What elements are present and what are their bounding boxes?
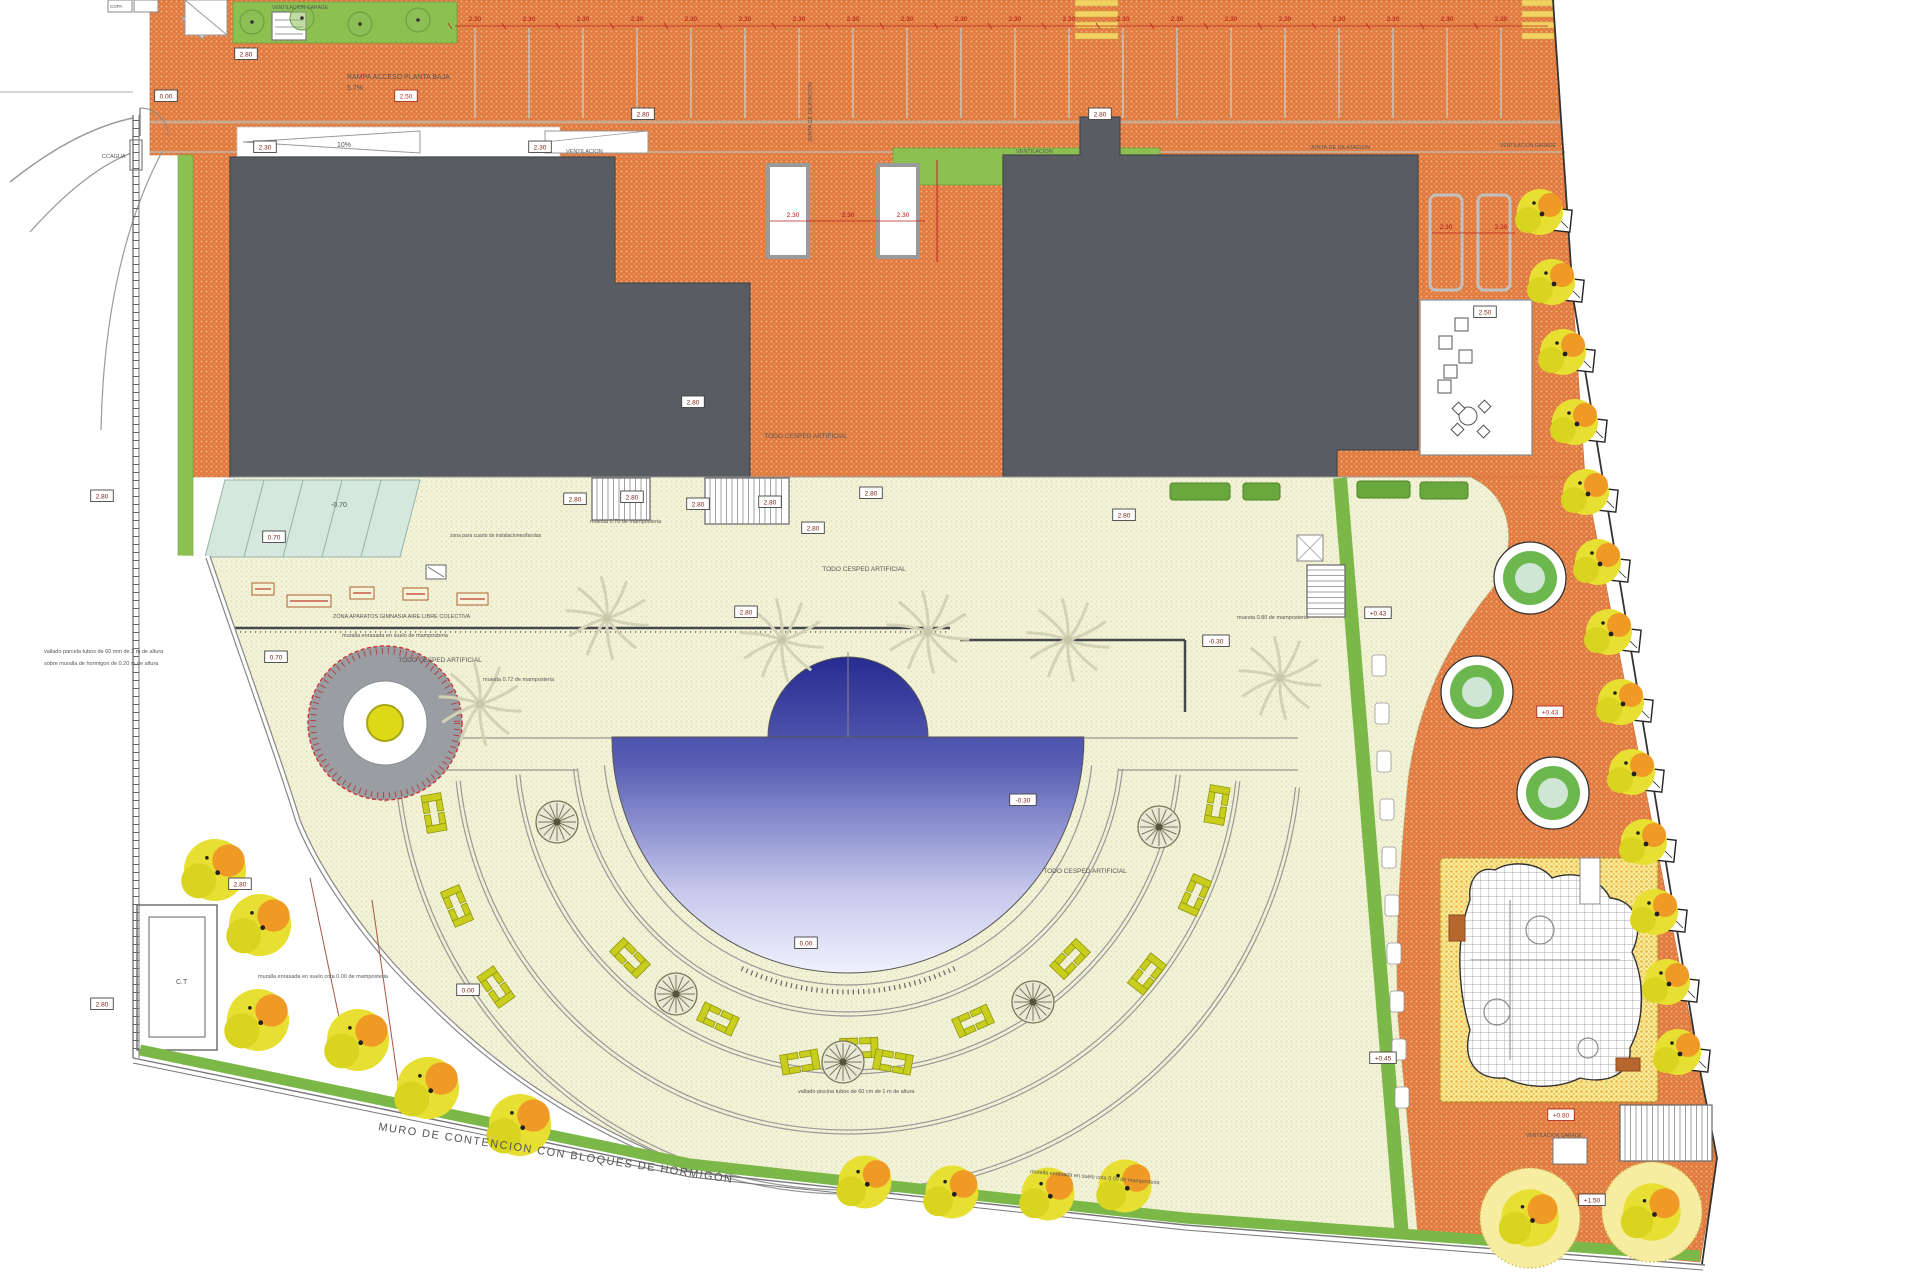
plan-annotation: muralla enrasada en suelo de mamposteria [342,633,449,639]
plan-annotation: vallado piscina tubos de 60 cm de 1 m de… [798,1089,915,1095]
grass-strip-left [178,155,193,557]
elevation-value: +0.43 [1542,710,1559,717]
dim-label: 2.30 [1279,16,1292,23]
plan-annotation: muesta 0.70 de mamposteria [590,519,662,525]
stepping-stone [1390,991,1404,1012]
elevation-marker: 2.80 [564,493,587,505]
elevation-value: 2.80 [96,494,109,501]
plan-annotation: muesta 0.72 de mamposteria [483,677,555,683]
stepping-stone [1395,1087,1409,1108]
dim-label: 2.30 [1225,16,1238,23]
elevation-marker: 2.80 [632,108,655,120]
garage-vent-box-bottom [1553,1138,1587,1164]
elevation-marker: +0.45 [1370,1052,1397,1064]
gym-equipment-box [252,583,274,595]
dim-label: 2.30 [897,212,910,219]
dim-label: 2.30 [793,16,806,23]
crossing-stripe [1522,33,1554,39]
elevation-value: 2.80 [865,491,878,498]
courtyard-vent [768,165,808,257]
stair-flight [1307,565,1345,617]
plan-annotation: muralla enrasada en suelo cota 0.00 de m… [258,974,389,980]
dim-label: 2.30 [842,212,855,219]
dim-label: 2.30 [1333,16,1346,23]
plan-annotation: VENTILACION [1016,149,1053,155]
elevation-value: 2.80 [569,497,582,504]
plan-annotation: COPA [110,4,122,9]
stepping-stone [1382,847,1396,868]
elevation-value: 2.80 [687,400,700,407]
crossing-stripe [1075,33,1118,39]
plan-annotation: JUNTA DE DILATACION [808,82,814,142]
elevation-value: +1.50 [1584,1198,1601,1205]
elevation-marker: 2.80 [735,606,758,618]
elevation-marker: 2.80 [802,522,825,534]
stepping-stone [1372,655,1386,676]
plan-annotation: sobre muralla de hormigon de 0.20 m de a… [44,661,159,667]
elevation-value: 2.80 [740,610,753,617]
hedge-block [1420,482,1468,499]
gym-equipment-box [287,595,331,607]
elevation-value: 2.30 [259,145,272,152]
round-planter [1517,757,1589,829]
transformer-ct-unit [149,917,205,1037]
dim-label: 2.30 [901,16,914,23]
palm-circle-icon [655,973,697,1015]
elevation-value: +0.43 [1370,611,1387,618]
elevation-value: 2.50 [1479,310,1492,317]
crossing-stripe [1075,11,1118,17]
elevation-marker: +0.80 [1548,1109,1575,1121]
elevation-marker: 2.80 [621,491,644,503]
gym-equipment-box [403,588,428,600]
tree-icon [1480,1168,1580,1268]
elevation-marker: 2.30 [254,141,277,153]
elevation-marker: 2.80 [229,878,252,890]
elevation-marker: 2.80 [1113,509,1136,521]
plan-annotation: VENTILACION [566,149,603,155]
patio-area [1420,300,1532,455]
stepping-stone [1377,751,1391,772]
stepping-stone [1375,703,1389,724]
elevation-marker: -0.30 [1203,635,1230,647]
elevation-value: 2.80 [1094,112,1107,119]
elevation-value: 0.00 [462,988,475,995]
round-planter [1441,656,1513,728]
plan-annotation: RAMPA ACCESO PLANTA BAJA [347,74,450,81]
elevation-marker: +1.50 [1579,1194,1606,1206]
palm-circle-icon [1012,981,1054,1023]
elevation-value: 0.00 [800,941,813,948]
stair-flight [1620,1105,1712,1161]
plan-annotation: 5.7% [347,85,363,92]
stepping-stone [1380,799,1394,820]
plan-annotation: VENTILACION GARAGE [272,5,329,11]
plan-annotation: VENTILACION GARAGE [1500,143,1557,149]
elevation-marker: 2.30 [529,141,552,153]
site-plan-drawing: 2.302.302.302.302.302.302.302.302.302.30… [0,0,1920,1280]
small-tree-icon [348,12,372,36]
plan-annotation: -0.70 [331,502,347,509]
plan-annotation: TODO CESPED ARTIFICIAL [398,657,482,664]
elevation-value: +0.45 [1375,1056,1392,1063]
dim-label: 2.30 [1171,16,1184,23]
elevation-marker: -0.30 [1010,794,1037,806]
crossing-stripe [1522,22,1554,28]
elevation-marker: 2.80 [759,496,782,508]
patio-chair [1438,380,1451,393]
elevation-marker: 2.80 [1089,108,1112,120]
elevation-marker: 0.00 [457,984,480,996]
ramp-teal [205,480,420,557]
elevation-value: -0.30 [1016,798,1031,805]
playground [1440,858,1658,1102]
building-b-roof [1003,117,1418,477]
plan-annotation: C.T [176,979,188,986]
elevation-marker: 2.50 [395,90,418,102]
plan-annotation: 10% [337,142,351,149]
dim-label: 2.30 [469,16,482,23]
dim-label: 2.30 [1387,16,1400,23]
play-entrance [1580,858,1600,904]
crossing-stripe [1522,11,1554,17]
elevation-value: 2.80 [692,502,705,509]
elevation-value: 2.80 [96,1002,109,1009]
plan-annotation: JUNTA DE DILATACION [1310,145,1370,151]
dim-label: 2.30 [631,16,644,23]
palm-circle-icon [822,1041,864,1083]
plan-annotation: TODO CESPED ARTIFICIAL [764,433,848,440]
dim-label: 2.30 [1009,16,1022,23]
hedge-block [1243,483,1280,500]
elevation-marker: 0.70 [263,531,286,543]
elevation-value: 0.70 [268,535,281,542]
patio-chair [1444,365,1457,378]
plan-annotation: zona para cuarto de instalaciones/farola… [450,533,542,539]
patio-chair [1439,336,1452,349]
plan-annotation: TODO CESPED ARTIFICIAL [1043,868,1127,875]
elevation-value: 0.00 [160,94,173,101]
elevation-marker: 2.50 [1474,306,1497,318]
small-tree-icon [240,10,264,34]
site-plan-page: 2.302.302.302.302.302.302.302.302.302.30… [0,0,1920,1280]
elevation-marker: +0.43 [1537,706,1564,718]
dim-label: 2.30 [739,16,752,23]
dim-label: 2.30 [847,16,860,23]
elevation-marker: 2.80 [91,490,114,502]
patio-chair [1455,318,1468,331]
plan-annotation: ZONA APARATOS GIMNASIA AIRE LIBRE COLECT… [333,614,470,620]
small-tree-icon [406,8,430,32]
hedge-block [1170,483,1230,500]
elevation-marker: 0.00 [795,937,818,949]
dim-label: 2.30 [685,16,698,23]
plan-annotation: TODO CESPED ARTIFICIAL [822,566,906,573]
elevation-value: 2.80 [807,526,820,533]
dim-label: 2.30 [1440,224,1453,231]
elevation-marker: 2.80 [235,48,258,60]
plan-annotation: VENTILACION GARAGE [1526,1133,1583,1139]
dim-label: 2.30 [1063,16,1076,23]
elevation-value: 2.30 [534,145,547,152]
plan-annotation: muesta 0.80 de mamposteria [1237,615,1309,621]
elevation-marker: 2.80 [687,498,710,510]
elevation-value: 2.80 [764,500,777,507]
stepping-stone [1387,943,1401,964]
elevation-value: 0.70 [270,655,283,662]
elevation-value: 2.80 [626,495,639,502]
elevation-marker: 0.70 [265,651,288,663]
street-cabinet [134,0,158,12]
elevation-value: -0.30 [1209,639,1224,646]
elevation-marker: 0.00 [155,90,178,102]
dim-label: 2.30 [955,16,968,23]
elevation-marker: 2.80 [682,396,705,408]
elevation-value: 2.50 [400,94,413,101]
courtyard-vent [878,165,918,257]
dim-label: 2.30 [1117,16,1130,23]
dim-label: 2.30 [787,212,800,219]
gym-equipment-box [350,587,374,599]
dim-label: 2.30 [1495,224,1508,231]
elevation-marker: +0.43 [1365,607,1392,619]
dim-label: 2.30 [1441,16,1454,23]
plan-annotation: vallado parcela tubos de 60 mm de 2 m de… [44,649,164,655]
elevation-value: +0.80 [1553,1113,1570,1120]
elevation-value: 2.80 [240,52,253,59]
elevation-marker: 2.80 [91,998,114,1010]
crossing-stripe [1522,0,1554,6]
elevation-value: 2.80 [637,112,650,119]
round-planter [1494,542,1566,614]
tree-icon [1602,1162,1702,1262]
stepping-stone [1385,895,1399,916]
play-bench [1616,1058,1640,1071]
elevation-value: 2.80 [1118,513,1131,520]
palm-circle-icon [1138,806,1180,848]
elevation-value: 2.80 [234,882,247,889]
palm-circle-icon [536,801,578,843]
dim-label: 2.30 [523,16,536,23]
elevation-marker: 2.80 [860,487,883,499]
gym-equipment-box [457,593,488,605]
hedge-block [1357,481,1410,498]
crossing-stripe [1075,0,1118,6]
crossing-stripe [1075,22,1118,28]
dim-label: 2.30 [577,16,590,23]
play-bench [1449,915,1465,941]
patio-chair [1459,350,1472,363]
dim-label: 2.30 [1495,16,1508,23]
plan-annotation: CCAGUA [102,154,126,160]
